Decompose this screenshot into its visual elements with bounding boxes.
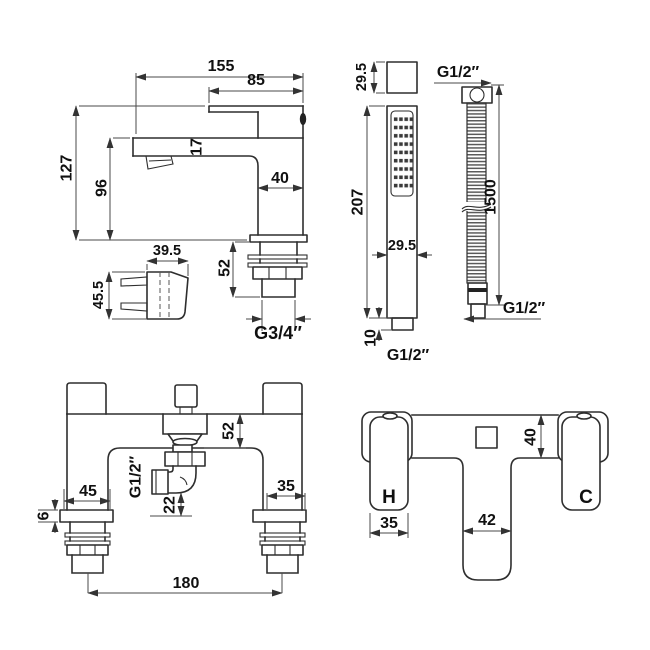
- dim-body-height: 52: [221, 422, 238, 440]
- dim-base-plate-thickness: 6: [36, 511, 53, 520]
- cold-indicator: C: [579, 487, 593, 508]
- dim-hose-bottom-thread: G1/2″: [503, 300, 546, 317]
- spray-nozzles: [394, 117, 415, 191]
- dim-spout-width: 42: [478, 512, 496, 529]
- dim-right-leg-width: 35: [277, 478, 295, 495]
- dim-handle-width: 35: [380, 515, 398, 532]
- dim-left-base-width: 45: [79, 483, 97, 500]
- dim-inlet-centres: 180: [173, 575, 200, 592]
- outlet-nut: [165, 452, 205, 466]
- handle-indicator-dot: [300, 113, 306, 125]
- dim-shank-thread: G3/4″: [254, 323, 302, 343]
- dim-shank-length: 52: [217, 259, 234, 277]
- dim-handset-length: 207: [350, 189, 367, 216]
- dim-outlet-thread: G1/2″: [128, 455, 145, 498]
- technical-drawing: 155 85 127 96 17 40 52 39.5 45.5: [0, 0, 650, 650]
- hot-indicator: H: [382, 487, 396, 508]
- dim-profile-height: 45.5: [91, 281, 107, 309]
- cold-handle-pin: [577, 413, 591, 419]
- drawing-svg: 155 85 127 96 17 40 52 39.5 45.5: [0, 0, 650, 650]
- dim-spout-thickness: 17: [189, 138, 206, 156]
- dim-overall-height: 127: [59, 155, 76, 182]
- dim-handle-length: 85: [247, 72, 265, 89]
- dim-body-depth: 40: [523, 428, 540, 446]
- dim-handset-width: 29.5: [388, 238, 416, 254]
- dim-total-reach: 155: [208, 58, 235, 75]
- dim-hose-length: 1500: [483, 179, 500, 215]
- dim-body-width: 40: [271, 170, 289, 187]
- dim-handset-thread: G1/2″: [387, 347, 430, 364]
- dim-head-depth: 29.5: [354, 63, 370, 91]
- dim-outlet-clearance: 22: [162, 496, 179, 514]
- background: [0, 0, 650, 650]
- dim-connector-length: 10: [363, 329, 380, 347]
- outlet-elbow-flange: [152, 470, 168, 494]
- dim-profile-width: 39.5: [153, 243, 181, 259]
- hot-handle-pin: [383, 413, 397, 419]
- dim-hose-top-thread: G1/2″: [437, 64, 480, 81]
- dim-spout-height: 96: [94, 179, 111, 197]
